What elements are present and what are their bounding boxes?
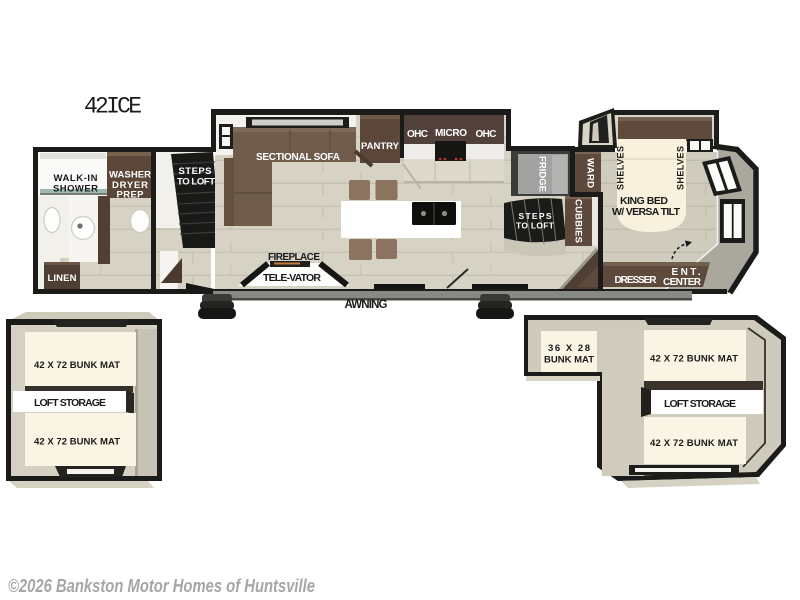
- svg-text:SHELVES: SHELVES: [615, 146, 625, 190]
- svg-text:42ICE: 42ICE: [84, 94, 142, 120]
- svg-text:AWNING: AWNING: [345, 299, 388, 311]
- svg-text:FRIDGE: FRIDGE: [536, 156, 547, 192]
- svg-text:W/ VERSA TILT: W/ VERSA TILT: [612, 206, 681, 218]
- svg-text:SECTIONAL SOFA: SECTIONAL SOFA: [256, 152, 340, 163]
- svg-text:42 X 72 BUNK MAT: 42 X 72 BUNK MAT: [34, 437, 120, 448]
- svg-text:PREP: PREP: [117, 190, 145, 201]
- svg-text:LINEN: LINEN: [48, 273, 77, 284]
- svg-text:LOFT STORAGE: LOFT STORAGE: [34, 397, 106, 409]
- svg-text:WALK-IN: WALK-IN: [54, 173, 98, 184]
- svg-text:FIREPLACE: FIREPLACE: [268, 252, 320, 263]
- svg-text:TO LOFT: TO LOFT: [177, 177, 215, 188]
- svg-text:PANTRY: PANTRY: [361, 141, 400, 152]
- svg-text:STEPS: STEPS: [179, 166, 212, 177]
- svg-text:TO LOFT: TO LOFT: [516, 221, 555, 231]
- svg-text:SHELVES: SHELVES: [675, 146, 685, 190]
- svg-text:42 X 72 BUNK MAT: 42 X 72 BUNK MAT: [650, 438, 738, 449]
- svg-text:©2026 Bankston Motor Homes of: ©2026 Bankston Motor Homes of Huntsville: [8, 576, 315, 596]
- svg-text:STEPS: STEPS: [519, 211, 552, 221]
- svg-text:WARD: WARD: [584, 158, 595, 188]
- svg-text:42 X 72 BUNK MAT: 42 X 72 BUNK MAT: [650, 354, 738, 365]
- svg-text:BUNK MAT: BUNK MAT: [544, 355, 594, 366]
- svg-text:CENTER: CENTER: [663, 277, 702, 288]
- svg-text:TELE-VATOR: TELE-VATOR: [263, 272, 321, 284]
- svg-text:SHOWER: SHOWER: [53, 184, 98, 195]
- svg-text:LOFT STORAGE: LOFT STORAGE: [664, 398, 736, 410]
- svg-text:MICRO: MICRO: [435, 128, 467, 139]
- svg-text:42 X 72 BUNK MAT: 42 X 72 BUNK MAT: [34, 360, 120, 371]
- svg-text:OHC: OHC: [476, 129, 497, 140]
- svg-text:CUBBIES: CUBBIES: [572, 199, 583, 243]
- svg-text:WASHER: WASHER: [109, 170, 151, 181]
- svg-text:DRESSER: DRESSER: [615, 275, 658, 286]
- svg-text:OHC: OHC: [407, 129, 428, 140]
